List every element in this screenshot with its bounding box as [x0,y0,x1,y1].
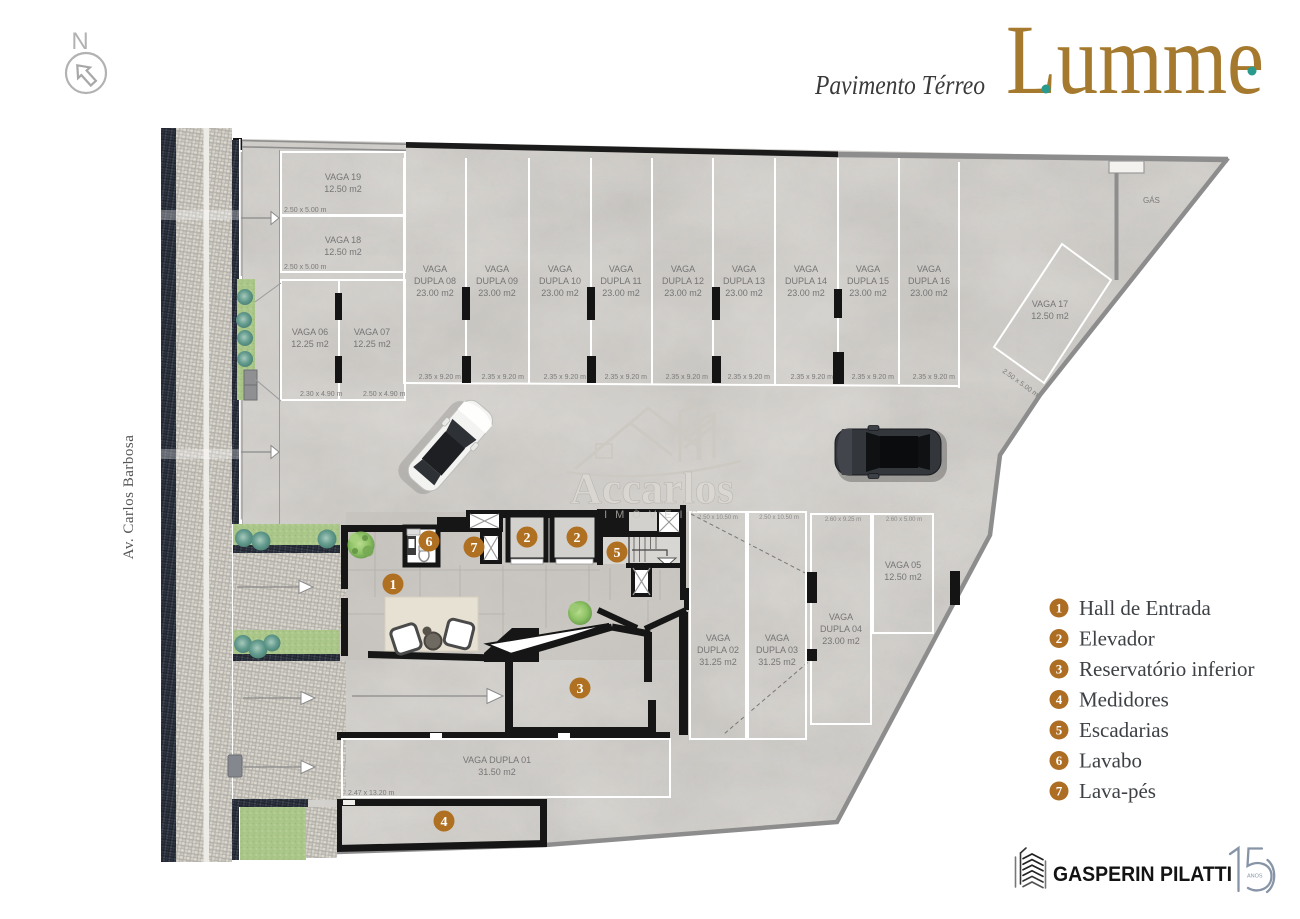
svg-text:5: 5 [1056,723,1063,738]
svg-text:Elevador: Elevador [1079,627,1155,651]
svg-text:2.50 x 10.50 m: 2.50 x 10.50 m [759,515,799,521]
svg-text:2.35 x 9.20 m: 2.35 x 9.20 m [791,374,834,381]
svg-text:2.35 x 9.20 m: 2.35 x 9.20 m [728,374,771,381]
svg-text:DUPLA 02: DUPLA 02 [697,645,739,655]
svg-text:N: N [71,28,88,55]
svg-text:3: 3 [1056,662,1063,677]
svg-text:23.00 m2: 23.00 m2 [602,288,640,298]
svg-text:VAGA: VAGA [732,264,756,274]
svg-text:VAGA: VAGA [794,264,818,274]
svg-text:23.00 m2: 23.00 m2 [416,288,454,298]
svg-text:2.50 x 5.00 m: 2.50 x 5.00 m [284,264,327,271]
svg-text:DUPLA 12: DUPLA 12 [662,276,704,286]
svg-text:Accarlos: Accarlos [570,464,734,513]
svg-text:23.00 m2: 23.00 m2 [849,288,887,298]
svg-text:2.35 x 9.20 m: 2.35 x 9.20 m [544,374,587,381]
svg-text:23.00 m2: 23.00 m2 [478,288,516,298]
svg-text:VAGA: VAGA [671,264,695,274]
svg-text:12.50 m2: 12.50 m2 [324,247,362,257]
svg-text:2.47 x 13.20 m: 2.47 x 13.20 m [348,790,394,797]
svg-text:GÁS: GÁS [1143,196,1160,205]
svg-text:7: 7 [1056,784,1063,799]
svg-text:VAGA: VAGA [917,264,941,274]
svg-text:DUPLA 09: DUPLA 09 [476,276,518,286]
svg-text:Medidores: Medidores [1079,688,1169,712]
svg-text:2.60 x 5.00 m: 2.60 x 5.00 m [886,517,922,523]
svg-text:31.50 m2: 31.50 m2 [478,767,516,777]
svg-text:2.35 x 9.20 m: 2.35 x 9.20 m [913,374,956,381]
svg-text:31.25 m2: 31.25 m2 [699,657,737,667]
svg-text:2.30 x 4.90 m: 2.30 x 4.90 m [300,391,343,398]
svg-text:VAGA: VAGA [609,264,633,274]
svg-text:23.00 m2: 23.00 m2 [822,636,860,646]
svg-text:1: 1 [390,578,397,593]
svg-text:12.50 m2: 12.50 m2 [1031,311,1069,321]
svg-text:DUPLA 10: DUPLA 10 [539,276,581,286]
svg-text:Lumme: Lumme [1006,4,1264,115]
svg-text:Pavimento Térreo: Pavimento Térreo [814,70,985,100]
svg-text:VAGA 19: VAGA 19 [325,172,361,182]
svg-text:2.50 x 4.90 m: 2.50 x 4.90 m [363,391,406,398]
svg-text:2.35 x 9.20 m: 2.35 x 9.20 m [419,374,462,381]
svg-text:IMÓVEIS: IMÓVEIS [604,508,706,521]
svg-text:3: 3 [577,682,584,697]
svg-text:VAGA: VAGA [856,264,880,274]
svg-text:VAGA 17: VAGA 17 [1032,299,1068,309]
svg-text:VAGA 05: VAGA 05 [885,560,921,570]
svg-text:Lavabo: Lavabo [1079,749,1142,773]
svg-text:Lava-pés: Lava-pés [1079,779,1156,803]
svg-text:2.35 x 9.20 m: 2.35 x 9.20 m [852,374,895,381]
svg-text:DUPLA 16: DUPLA 16 [908,276,950,286]
svg-text:VAGA 07: VAGA 07 [354,327,390,337]
svg-text:VAGA 06: VAGA 06 [292,327,328,337]
svg-text:ANOS: ANOS [1247,874,1263,880]
svg-text:VAGA: VAGA [706,633,730,643]
svg-text:VAGA DUPLA 01: VAGA DUPLA 01 [463,755,531,765]
svg-text:2.60 x 9.25 m: 2.60 x 9.25 m [825,517,861,523]
svg-text:VAGA: VAGA [423,264,447,274]
svg-text:DUPLA 15: DUPLA 15 [847,276,889,286]
svg-text:DUPLA 04: DUPLA 04 [820,624,862,634]
svg-text:DUPLA 03: DUPLA 03 [756,645,798,655]
svg-text:2: 2 [574,531,581,546]
svg-text:Hall de Entrada: Hall de Entrada [1079,596,1211,620]
svg-text:VAGA: VAGA [765,633,789,643]
svg-text:DUPLA 13: DUPLA 13 [723,276,765,286]
svg-text:DUPLA 11: DUPLA 11 [600,276,641,286]
svg-text:12.25 m2: 12.25 m2 [291,339,329,349]
svg-text:DUPLA 14: DUPLA 14 [785,276,827,286]
svg-text:VAGA: VAGA [829,612,853,622]
svg-text:2.35 x 9.20 m: 2.35 x 9.20 m [482,374,525,381]
svg-text:VAGA: VAGA [548,264,572,274]
svg-text:23.00 m2: 23.00 m2 [664,288,702,298]
svg-text:4: 4 [441,815,448,830]
svg-text:12.50 m2: 12.50 m2 [324,184,362,194]
svg-text:23.00 m2: 23.00 m2 [910,288,948,298]
svg-text:6: 6 [426,535,433,550]
svg-text:23.00 m2: 23.00 m2 [541,288,579,298]
svg-text:2.50 x 5.00 m: 2.50 x 5.00 m [284,207,327,214]
svg-text:2: 2 [524,531,531,546]
svg-text:23.00 m2: 23.00 m2 [787,288,825,298]
svg-text:2.35 x 9.20 m: 2.35 x 9.20 m [605,374,648,381]
svg-text:2: 2 [1056,631,1063,646]
svg-text:31.25 m2: 31.25 m2 [758,657,796,667]
svg-text:2.35 x 9.20 m: 2.35 x 9.20 m [666,374,709,381]
svg-text:VAGA: VAGA [485,264,509,274]
svg-text:12.50 m2: 12.50 m2 [884,572,922,582]
svg-text:GASPERIN PILATTI: GASPERIN PILATTI [1053,863,1232,886]
svg-text:12.25 m2: 12.25 m2 [353,339,391,349]
svg-text:23.00 m2: 23.00 m2 [725,288,763,298]
svg-text:1: 1 [1056,601,1063,616]
svg-text:7: 7 [471,541,478,556]
svg-text:5: 5 [614,546,621,561]
svg-text:4: 4 [1056,692,1063,707]
svg-text:Av. Carlos Barbosa: Av. Carlos Barbosa [121,435,137,560]
svg-text:DUPLA 08: DUPLA 08 [414,276,456,286]
svg-text:6: 6 [1056,753,1063,768]
svg-text:Escadarias: Escadarias [1079,718,1169,742]
svg-text:VAGA 18: VAGA 18 [325,235,361,245]
svg-text:Reservatório inferior: Reservatório inferior [1079,657,1255,681]
